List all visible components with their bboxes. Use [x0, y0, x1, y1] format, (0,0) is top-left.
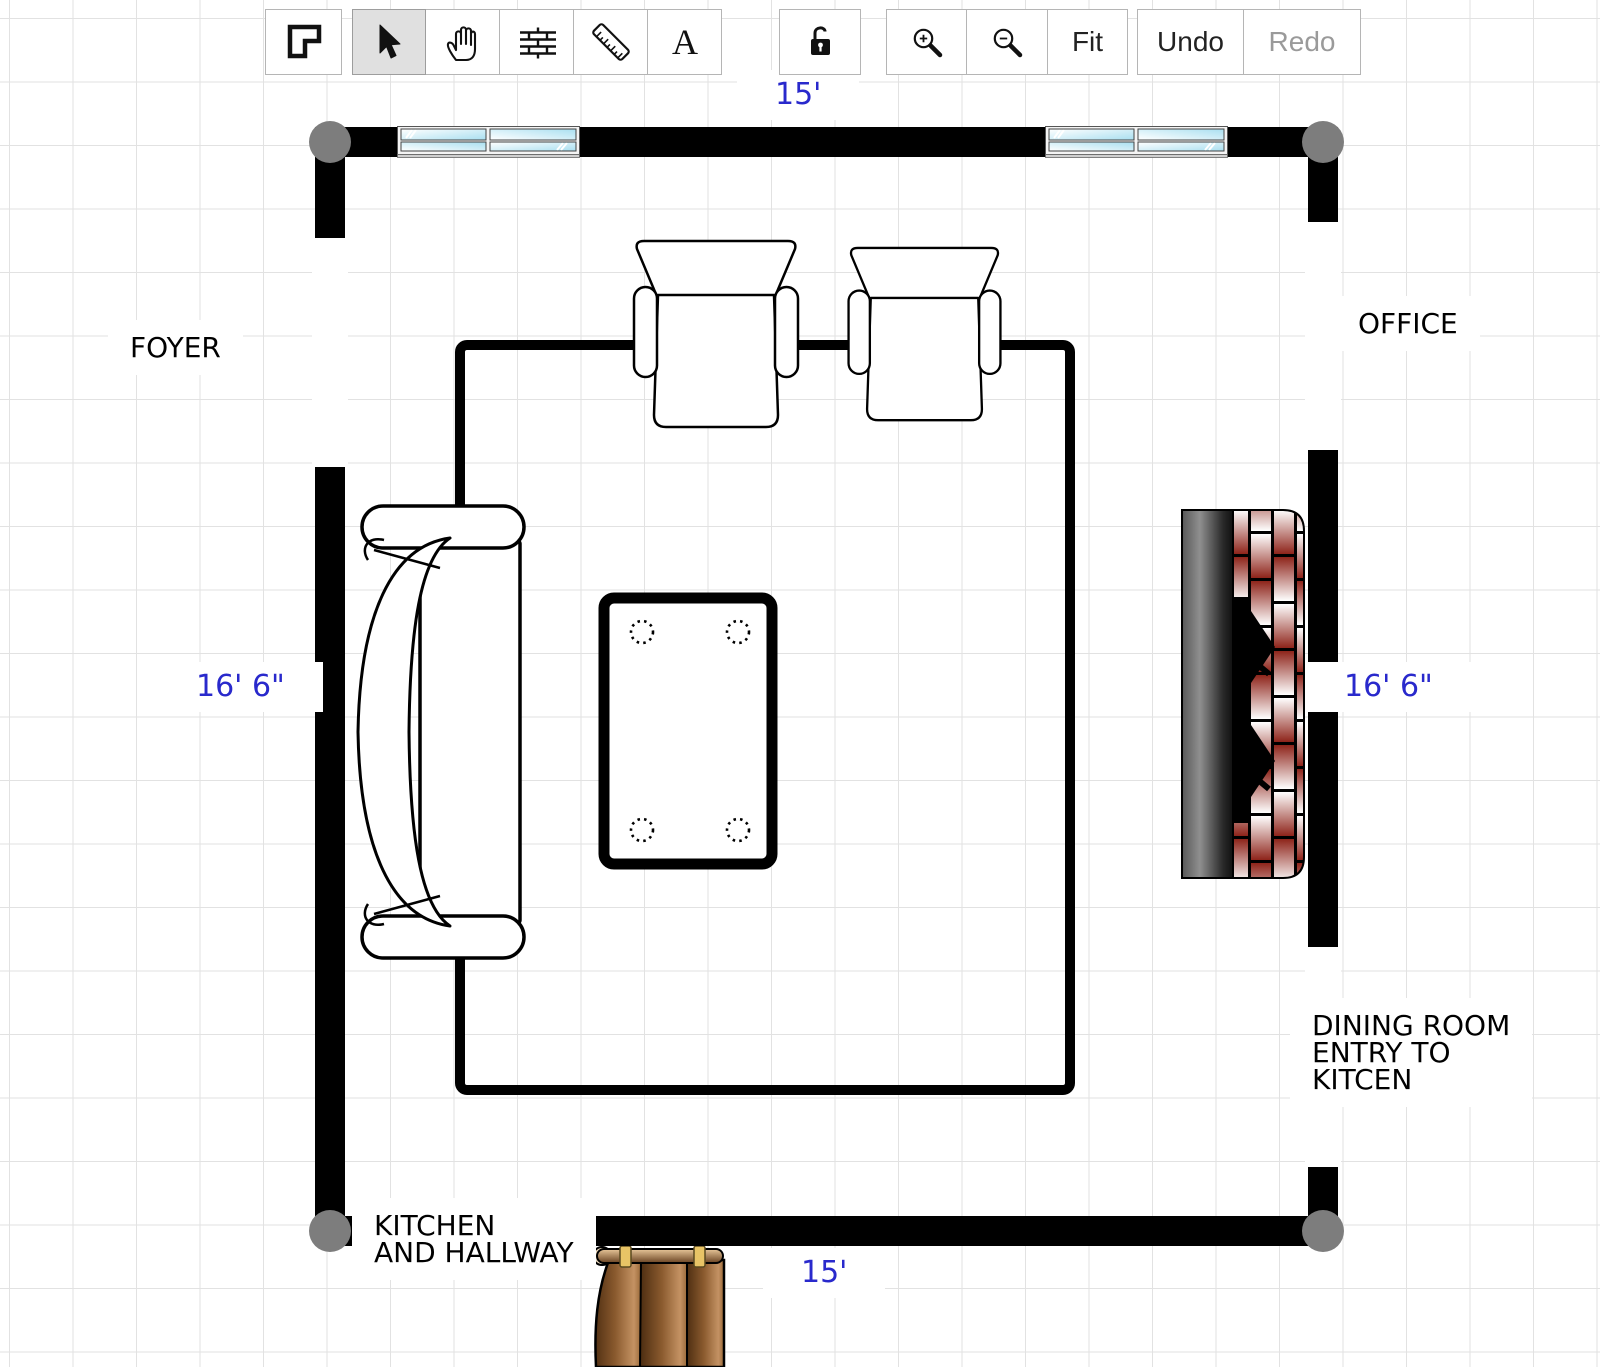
armchair-glyph [634, 241, 798, 427]
room-label-kitchen[interactable]: KITCHEN AND HALLWAY [352, 1198, 596, 1280]
dimension-left: 16' 6" [158, 662, 323, 712]
room-label-dining-line2: ENTRY TO [1312, 1039, 1510, 1066]
wall-joint-bottom-right[interactable] [1302, 1210, 1344, 1252]
window[interactable] [1045, 126, 1228, 158]
room-shape-tool-button[interactable] [265, 9, 342, 75]
toolbar-group-tools: A [352, 9, 722, 75]
undo-button[interactable]: Undo [1137, 9, 1244, 75]
brick-wall-icon [515, 20, 559, 64]
room-label-dining-line1: DINING ROOM [1312, 1012, 1510, 1039]
toolbar-group-zoom: Fit [886, 9, 1128, 75]
pan-tool-button[interactable] [426, 9, 500, 75]
coffee-table[interactable] [598, 592, 778, 870]
window-glyph [398, 127, 580, 158]
wall-joint-top-right[interactable] [1302, 121, 1344, 163]
text-icon: A [663, 20, 707, 64]
measure-tool-button[interactable] [574, 9, 648, 75]
fireplace-glyph [1182, 510, 1304, 878]
wall-bottom-main[interactable] [585, 1216, 1323, 1246]
wall-tool-button[interactable] [500, 9, 574, 75]
room-label-office[interactable]: OFFICE [1336, 296, 1480, 351]
room-label-foyer[interactable]: FOYER [108, 320, 243, 375]
wall-joint-bottom-left[interactable] [309, 1210, 351, 1252]
ruler-icon [589, 20, 633, 64]
wood-cabinet-glyph [593, 1246, 724, 1367]
svg-text:A: A [672, 22, 698, 62]
zoom-out-icon [985, 20, 1029, 64]
armchair[interactable] [628, 237, 804, 433]
lock-tool-button[interactable] [779, 9, 861, 75]
room-label-kitchen-line1: KITCHEN [374, 1212, 574, 1239]
select-tool-button[interactable] [352, 9, 426, 75]
unlock-icon [798, 20, 842, 64]
sofa[interactable] [340, 504, 526, 960]
zoom-out-button[interactable] [967, 9, 1048, 75]
toolbar-group-lock [779, 9, 861, 75]
hand-icon [441, 20, 485, 64]
window[interactable] [397, 126, 580, 158]
room-label-kitchen-line2: AND HALLWAY [374, 1239, 574, 1266]
floorplan-canvas[interactable]: 15' 16' 6" 16' 6" 15' FOYER OFFICE DININ… [0, 0, 1600, 1367]
window-glyph [1046, 127, 1228, 158]
opening-foyer [312, 235, 348, 470]
armchair-glyph [849, 248, 1001, 420]
room-label-dining-line3: KITCEN [1312, 1066, 1510, 1093]
dimension-bottom: 15' [763, 1248, 885, 1298]
toolbar-group-room [265, 9, 342, 75]
zoom-in-icon [905, 20, 949, 64]
fireplace[interactable] [1181, 509, 1305, 879]
redo-button[interactable]: Redo [1244, 9, 1361, 75]
wall-joint-top-left[interactable] [309, 121, 351, 163]
coffee-table-glyph [604, 598, 772, 864]
cursor-icon [367, 20, 411, 64]
floorplan-app: 15' 16' 6" 16' 6" 15' FOYER OFFICE DININ… [0, 0, 1600, 1367]
text-tool-button[interactable]: A [648, 9, 722, 75]
room-label-dining[interactable]: DINING ROOM ENTRY TO KITCEN [1290, 998, 1532, 1107]
toolbar-group-history: Undo Redo [1137, 9, 1361, 75]
wood-cabinet[interactable] [583, 1246, 729, 1367]
toolbar: A [0, 0, 1600, 84]
zoom-in-button[interactable] [886, 9, 967, 75]
dimension-right: 16' 6" [1306, 662, 1471, 712]
sofa-glyph [358, 506, 524, 958]
room-shape-icon [282, 20, 326, 64]
fit-button[interactable]: Fit [1048, 9, 1128, 75]
armchair[interactable] [843, 240, 1006, 430]
